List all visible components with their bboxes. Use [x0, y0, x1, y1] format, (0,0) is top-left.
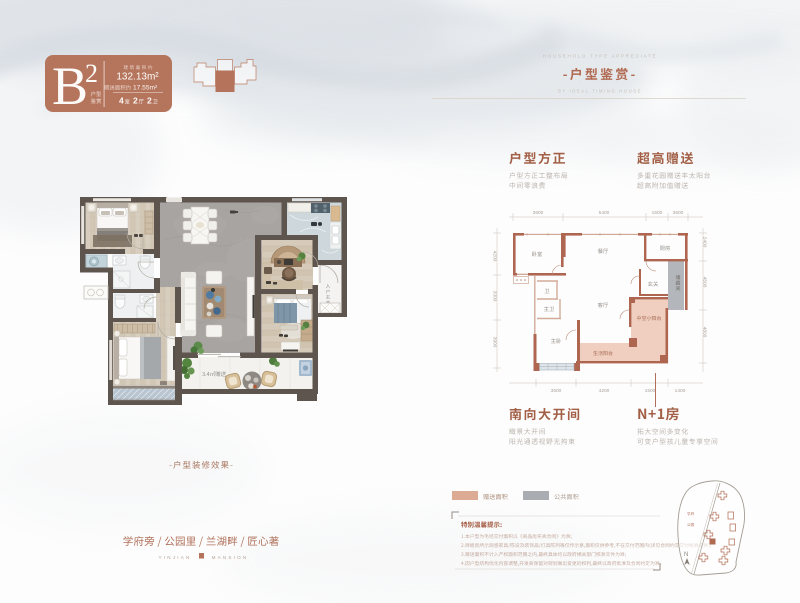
svg-text:2: 2 — [85, 59, 98, 88]
svg-text:2: 2 — [147, 96, 152, 106]
svg-text:MANSION: MANSION — [212, 555, 249, 560]
svg-text:YINJIAN: YINJIAN — [158, 555, 191, 560]
svg-text:1500: 1500 — [645, 388, 656, 394]
svg-text:3600: 3600 — [533, 210, 544, 216]
svg-text:HOUSEHOLD TYPE APPRECIATE: HOUSEHOLD TYPE APPRECIATE — [543, 54, 658, 59]
svg-text:4: 4 — [119, 96, 124, 106]
svg-text:BY IDEAL TIMING HOUSE: BY IDEAL TIMING HOUSE — [558, 89, 642, 94]
svg-text:3600: 3600 — [673, 210, 684, 216]
svg-text:4200: 4200 — [599, 388, 610, 394]
svg-text:1400: 1400 — [675, 388, 686, 394]
svg-text:17.55m²: 17.55m² — [133, 85, 158, 92]
svg-text:5400: 5400 — [599, 210, 610, 216]
svg-text:N: N — [684, 552, 688, 558]
svg-text:B: B — [52, 56, 88, 116]
svg-text:2: 2 — [133, 96, 138, 106]
svg-text:1500: 1500 — [652, 210, 663, 216]
svg-text:132.13m²: 132.13m² — [116, 72, 159, 83]
svg-text:3500: 3500 — [551, 388, 562, 394]
